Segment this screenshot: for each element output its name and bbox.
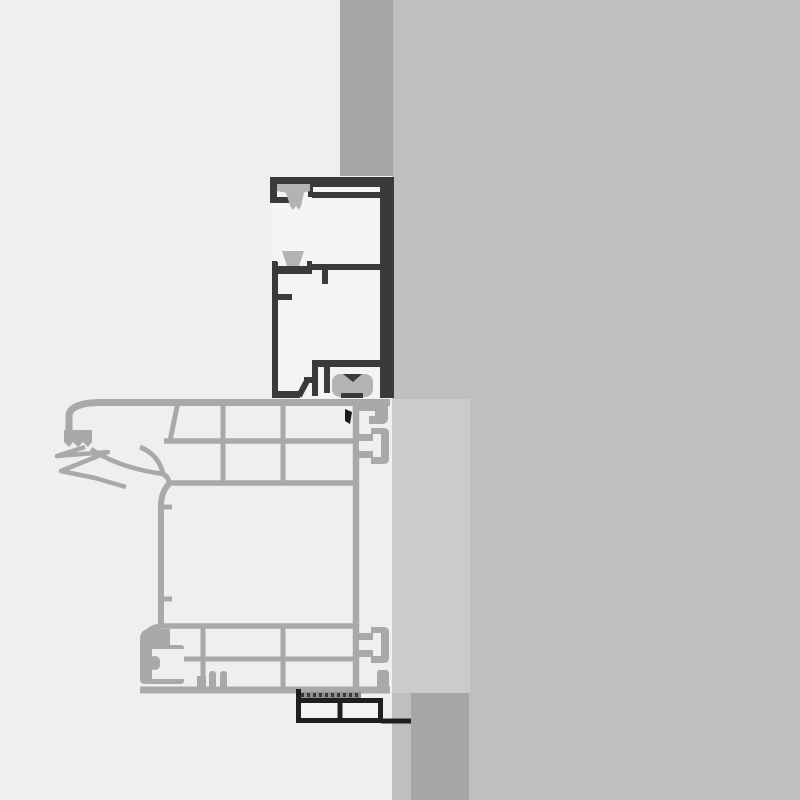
frame-mid-lip-right bbox=[307, 261, 312, 267]
frame-slot-bar bbox=[312, 192, 382, 198]
frame-wall-stub bbox=[278, 294, 292, 300]
frame-foot-cap bbox=[312, 360, 382, 367]
wall-strip-upper bbox=[340, 0, 393, 176]
frame-inner-ledge bbox=[312, 264, 382, 270]
bottom-bump-2 bbox=[220, 671, 227, 689]
hardware-groove-tab bbox=[149, 656, 160, 670]
frame-bottom-bar bbox=[272, 391, 300, 398]
frame-channel-left bbox=[312, 367, 318, 396]
sash-gasket-block bbox=[64, 430, 92, 447]
foot-gasket-pad bbox=[341, 393, 363, 398]
clip-hook-bottom bbox=[377, 670, 389, 691]
frame-right-wall bbox=[380, 177, 394, 398]
bottom-bump-1 bbox=[209, 671, 216, 689]
top-gasket-cap bbox=[277, 184, 310, 193]
frame-profile bbox=[270, 177, 394, 398]
frame-left-wall bbox=[272, 262, 278, 398]
wall-strip-lower bbox=[411, 693, 469, 800]
frame-ledge-tick bbox=[322, 270, 328, 284]
cross-section-diagram bbox=[0, 0, 800, 800]
frame-channel-right bbox=[324, 367, 330, 393]
glazing-panel bbox=[392, 399, 470, 693]
foot-gasket bbox=[332, 374, 373, 398]
